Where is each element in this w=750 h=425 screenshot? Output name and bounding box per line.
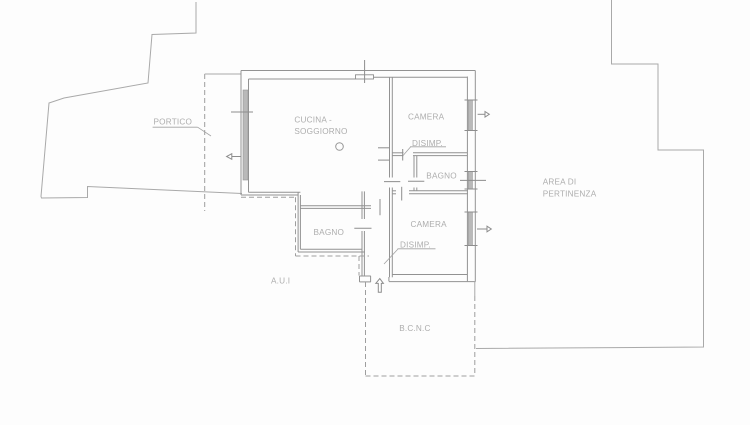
svg-text:B.C.N.C: B.C.N.C bbox=[399, 324, 430, 333]
svg-text:AREA DI: AREA DI bbox=[543, 177, 577, 186]
svg-text:CUCINA -: CUCINA - bbox=[294, 115, 332, 124]
svg-text:PORTICO: PORTICO bbox=[154, 118, 193, 127]
svg-text:A.U.I: A.U.I bbox=[271, 277, 290, 286]
svg-text:DISIMP.: DISIMP. bbox=[400, 241, 431, 250]
svg-text:BAGNO: BAGNO bbox=[426, 171, 457, 180]
svg-text:SOGGIORNO: SOGGIORNO bbox=[294, 127, 347, 136]
svg-text:PERTINENZA: PERTINENZA bbox=[543, 189, 597, 198]
svg-text:CAMERA: CAMERA bbox=[408, 113, 445, 122]
svg-text:CAMERA: CAMERA bbox=[411, 220, 448, 229]
svg-text:BAGNO: BAGNO bbox=[314, 228, 345, 237]
